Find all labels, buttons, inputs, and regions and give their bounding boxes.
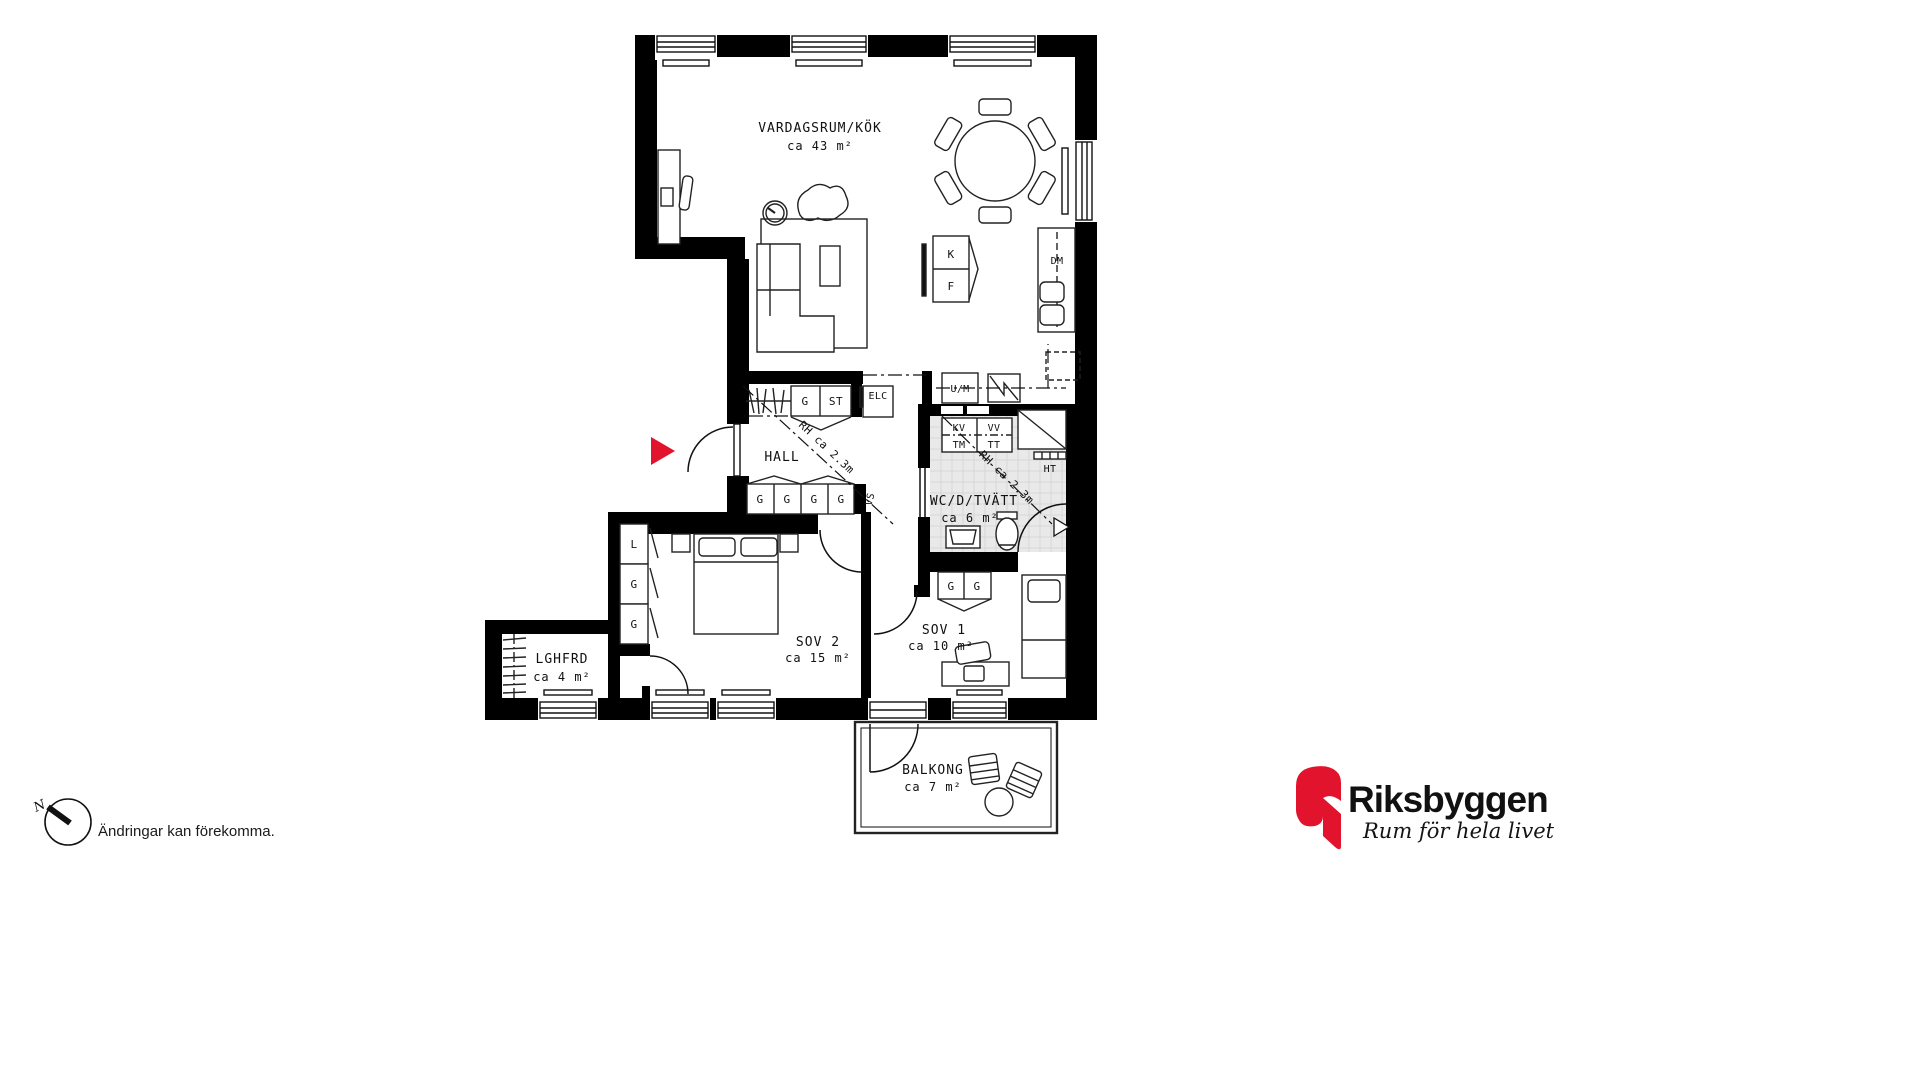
label-vs: VS bbox=[864, 492, 878, 507]
label-tt: TT bbox=[988, 440, 1001, 451]
room-area-balkong: ca 7 m² bbox=[904, 780, 962, 794]
lghfrd-door-arc bbox=[650, 656, 688, 694]
cabinet-swing-mark bbox=[938, 599, 991, 611]
wall bbox=[1075, 222, 1097, 404]
pillow bbox=[1028, 580, 1060, 602]
window bbox=[716, 690, 776, 722]
sov1-door-arc bbox=[874, 591, 917, 634]
window bbox=[948, 30, 1037, 66]
room-label-sov2: SOV 2 bbox=[796, 635, 840, 650]
room-label-hall: HALL bbox=[764, 450, 799, 465]
wall bbox=[608, 512, 620, 720]
towel-dryer bbox=[1034, 452, 1066, 459]
side-table bbox=[820, 246, 840, 286]
sink-basin bbox=[1040, 282, 1064, 302]
label-hall-g1: G bbox=[756, 493, 763, 506]
label-kv: KV bbox=[953, 423, 966, 434]
label-sov1-g1: G bbox=[947, 580, 954, 593]
room-area-wc: ca 6 m² bbox=[941, 511, 999, 525]
label-hall-g4: G bbox=[837, 493, 844, 506]
wall-cabinet-dashed bbox=[1046, 352, 1080, 380]
cabinet-swing-mark bbox=[747, 476, 854, 484]
room-label-sov1: SOV 1 bbox=[922, 623, 966, 638]
floorplan-canvas: VARDAGSRUM/KÖK ca 43 m² HALL WC/D/TVÄTT … bbox=[0, 0, 1920, 1080]
floorplan-drawing: VARDAGSRUM/KÖK ca 43 m² HALL WC/D/TVÄTT … bbox=[0, 0, 1920, 1080]
wall bbox=[861, 512, 871, 698]
label-tm: TM bbox=[953, 440, 966, 451]
desk-monitor bbox=[964, 666, 984, 681]
room-label-balkong: BALKONG bbox=[902, 763, 964, 778]
window bbox=[951, 690, 1008, 722]
wall bbox=[710, 698, 716, 720]
riksbyggen-tagline: Rum för hela livet bbox=[1362, 819, 1555, 843]
entry-arrow bbox=[651, 437, 675, 465]
room-label-wc: WC/D/TVÄTT bbox=[930, 493, 1018, 509]
wall bbox=[608, 644, 642, 656]
plant bbox=[798, 184, 848, 220]
label-cab-st: ST bbox=[829, 395, 843, 408]
label-wardrobe-l: L bbox=[630, 538, 637, 551]
nightstand bbox=[780, 534, 798, 552]
wall bbox=[918, 517, 932, 552]
room-area-sov2: ca 15 m² bbox=[785, 651, 851, 665]
window bbox=[790, 30, 868, 66]
wall bbox=[744, 371, 863, 384]
tv bbox=[922, 244, 926, 296]
door-opening bbox=[1018, 552, 1066, 572]
label-ht: HT bbox=[1044, 464, 1057, 475]
label-elc: ELC bbox=[869, 391, 888, 402]
label-hall-g3: G bbox=[810, 493, 817, 506]
wall bbox=[928, 698, 951, 720]
compass: N bbox=[31, 797, 91, 845]
balcony-table bbox=[985, 788, 1013, 816]
pillow bbox=[699, 538, 735, 556]
balcony-stool bbox=[968, 753, 1000, 785]
label-vv: VV bbox=[988, 423, 1001, 434]
wall bbox=[635, 237, 745, 259]
wall bbox=[635, 35, 657, 259]
balcony-stool bbox=[1006, 762, 1043, 799]
label-washer-micro: U/M bbox=[951, 384, 970, 395]
label-dishwasher: DM bbox=[1051, 256, 1064, 267]
elc-tick bbox=[860, 387, 863, 407]
fridge-freezer-door bbox=[969, 238, 978, 300]
pillow bbox=[741, 538, 777, 556]
entry-door-panel bbox=[727, 424, 749, 476]
label-hall-g2: G bbox=[783, 493, 790, 506]
room-area-living: ca 43 m² bbox=[787, 139, 853, 153]
window bbox=[1062, 140, 1100, 222]
riksbyggen-logo-text: Riksbyggen bbox=[1348, 779, 1548, 820]
desk-monitor bbox=[661, 188, 673, 206]
balcony-door-panel bbox=[868, 698, 928, 722]
wall bbox=[642, 686, 650, 698]
riksbyggen-logo: Riksbyggen Rum för hela livet bbox=[1296, 766, 1555, 849]
sink-basin bbox=[1040, 305, 1064, 325]
wall bbox=[776, 698, 868, 720]
label-cab-g: G bbox=[801, 395, 808, 408]
wall bbox=[727, 259, 749, 424]
window bbox=[538, 690, 598, 722]
dining-chair bbox=[979, 99, 1011, 115]
label-wardrobe-g2: G bbox=[630, 618, 637, 631]
dining-group bbox=[933, 99, 1056, 223]
label-wardrobe-g1: G bbox=[630, 578, 637, 591]
entry-door-arc bbox=[688, 427, 733, 472]
label-freezer: F bbox=[947, 280, 954, 293]
compass-needle bbox=[48, 807, 70, 823]
room-label-lghfrd: LGHFRD bbox=[536, 652, 589, 667]
wall bbox=[485, 698, 538, 720]
wall bbox=[598, 698, 650, 720]
window bbox=[650, 690, 710, 722]
sov2-door-arc bbox=[820, 530, 862, 572]
riksbyggen-logo-mark bbox=[1296, 766, 1341, 849]
desk-chair bbox=[679, 175, 694, 210]
wall bbox=[1075, 57, 1097, 140]
dining-table bbox=[955, 121, 1035, 201]
room-area-lghfrd: ca 4 m² bbox=[533, 670, 591, 684]
toilet bbox=[996, 512, 1018, 550]
sink bbox=[946, 526, 980, 548]
window bbox=[655, 30, 717, 66]
wall-niche bbox=[941, 406, 963, 414]
wall bbox=[918, 552, 1097, 572]
label-sov1-g2: G bbox=[973, 580, 980, 593]
disclaimer-text: Ändringar kan förekomma. bbox=[98, 823, 275, 840]
dining-chair bbox=[979, 207, 1011, 223]
wall bbox=[485, 620, 608, 634]
room-area-sov1: ca 10 m² bbox=[908, 639, 974, 653]
room-label-living: VARDAGSRUM/KÖK bbox=[758, 119, 882, 136]
wall bbox=[642, 644, 650, 656]
wall-niche bbox=[967, 406, 989, 414]
wall bbox=[1008, 698, 1097, 720]
nightstand bbox=[672, 534, 690, 552]
label-fridge: K bbox=[947, 248, 954, 261]
storage-shelf bbox=[503, 634, 526, 698]
